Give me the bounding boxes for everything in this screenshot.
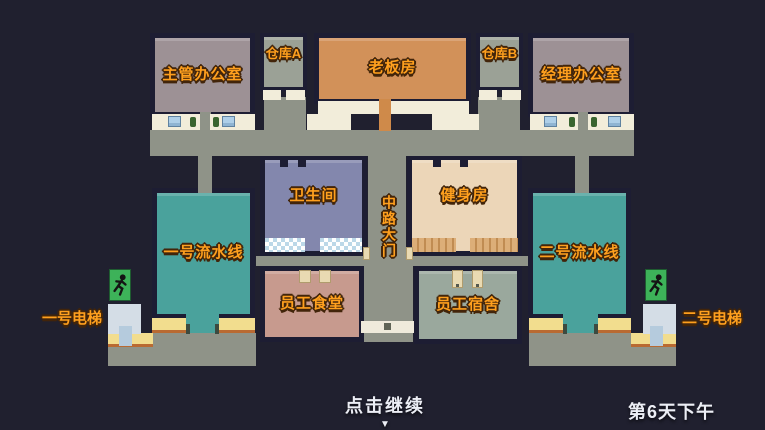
door-passage-warehouse-b [478, 97, 520, 132]
corridor-below-gate [364, 333, 413, 342]
room-label-staff-dorm: 员工宿舍 [436, 297, 500, 314]
door-boss-room [379, 99, 391, 131]
elevator-2-label: 二号电梯 [682, 307, 742, 328]
bathroom-door-leaf [298, 160, 306, 167]
exit-running-man-icon [109, 269, 131, 301]
computer-icon [608, 116, 621, 127]
bathroom-tile-floor-left [265, 238, 305, 252]
room-label-manager-office: 经理办公室 [541, 67, 621, 84]
room-label-gym: 健身房 [440, 188, 488, 205]
computer-icon [544, 116, 557, 127]
room-label-assembly-line-2: 二号流水线 [539, 245, 619, 262]
door-post [215, 324, 219, 334]
room-staff-canteen[interactable]: 员工食堂 [260, 266, 364, 342]
canteen-door-tile [319, 270, 331, 283]
elevator-2-car [650, 326, 663, 346]
room-label-bathroom: 卫生间 [289, 188, 337, 205]
floor-yellow-line2-right [598, 318, 631, 333]
room-boss-room[interactable]: 老板房 [314, 33, 471, 104]
threshold-warehouse-b-right [502, 90, 521, 100]
corridor-top [150, 130, 634, 156]
counter-boss-left [307, 114, 351, 130]
bathroom-door-leaf [280, 160, 288, 167]
room-label-assembly-line-1: 一号流水线 [163, 245, 243, 262]
room-label-boss-room: 老板房 [368, 60, 416, 77]
door-passage-warehouse-a [264, 97, 306, 132]
floor-yellow-line1-left [152, 318, 186, 333]
counter-boss-right [432, 114, 479, 130]
gym-door-leaf [460, 160, 468, 167]
click-to-continue-button[interactable]: 点击继续 ▼ [320, 392, 450, 430]
room-label-supervisor-office: 主管办公室 [162, 67, 242, 84]
plant-icon [213, 117, 219, 127]
threshold-warehouse-b-left [479, 90, 497, 100]
room-warehouse-b[interactable]: 仓库B [476, 33, 523, 91]
plant-icon [591, 117, 597, 127]
dorm-door-handle [476, 284, 479, 287]
factory-map-screen[interactable]: 主管办公室 仓库A 老板房 仓库B 经理办公室 卫生间 健身房 一号流水线 二号… [0, 0, 765, 430]
gym-wood-floor-left [412, 238, 456, 252]
plant-icon [569, 117, 575, 127]
chevron-down-icon: ▼ [320, 419, 450, 430]
door-post [594, 324, 598, 334]
threshold-warehouse-a-right [286, 90, 305, 100]
elevator-1-label: 一号电梯 [42, 307, 102, 328]
door-passage-line1 [198, 155, 212, 193]
plant-icon [190, 117, 196, 127]
door-post [563, 324, 567, 334]
dorm-door-handle [456, 284, 459, 287]
gym-door-leaf [433, 160, 441, 167]
gate-junction-tile-left [363, 247, 370, 260]
threshold-warehouse-a-left [263, 90, 281, 100]
door-post [186, 324, 190, 334]
room-assembly-line-2[interactable]: 二号流水线 [528, 188, 631, 319]
room-label-warehouse-b: 仓库B [482, 47, 517, 61]
room-label-warehouse-a: 仓库A [266, 47, 301, 61]
bathroom-tile-floor-right [320, 238, 362, 252]
ledge-boss-left [318, 101, 380, 114]
floor-yellow-line1-right [219, 318, 255, 333]
ledge-boss-right [390, 101, 469, 114]
computer-icon [168, 116, 181, 127]
gate-junction-tile-right [406, 247, 413, 260]
computer-icon [222, 116, 235, 127]
room-warehouse-a[interactable]: 仓库A [260, 33, 307, 91]
exit-running-man-icon [645, 269, 667, 301]
day-indicator: 第6天下午 [628, 398, 758, 424]
door-line2 [563, 308, 598, 333]
room-label-staff-canteen: 员工食堂 [280, 296, 344, 313]
center-gate-label: 中路大门 [379, 195, 399, 259]
door-passage-line2 [575, 155, 589, 193]
room-supervisor-office[interactable]: 主管办公室 [150, 33, 255, 117]
elevator-1-car [119, 326, 132, 346]
room-manager-office[interactable]: 经理办公室 [528, 33, 634, 117]
main-gate-mat [384, 323, 391, 330]
gym-wood-floor-right [470, 238, 518, 252]
continue-label: 点击继续 [345, 396, 425, 416]
door-passage-manager [578, 112, 588, 132]
canteen-door-tile [299, 270, 311, 283]
room-staff-dorm[interactable]: 员工宿舍 [414, 266, 522, 344]
room-assembly-line-1[interactable]: 一号流水线 [152, 188, 255, 319]
floor-yellow-line2-left [529, 318, 563, 333]
